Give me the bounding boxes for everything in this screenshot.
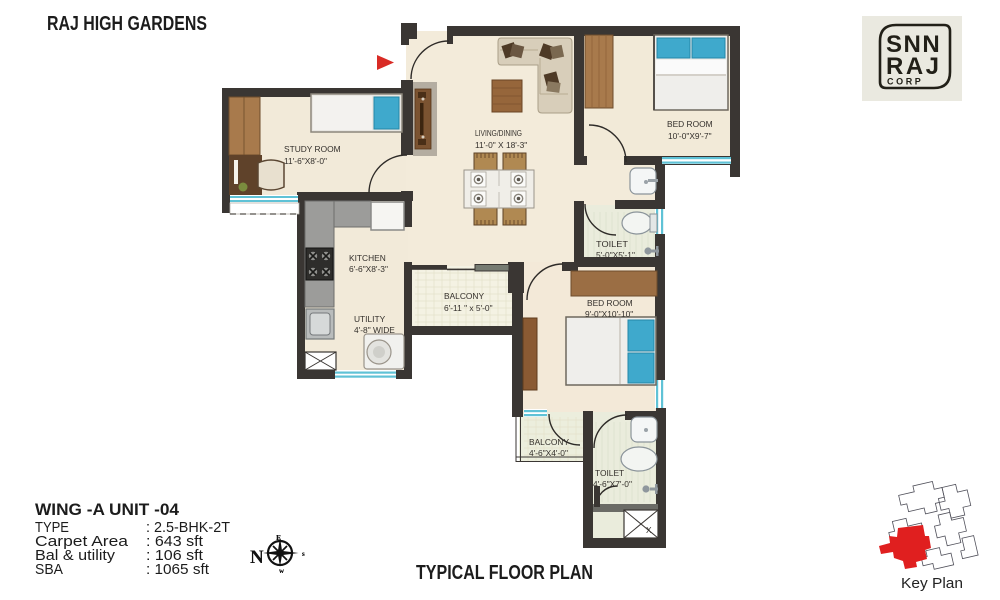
svg-text:Key Plan: Key Plan — [901, 576, 963, 592]
svg-text:11'-0" X 18'-3": 11'-0" X 18'-3" — [475, 140, 527, 150]
svg-text:BALCONY: BALCONY — [529, 437, 569, 447]
svg-text:KITCHEN: KITCHEN — [349, 253, 386, 263]
svg-text:STUDY ROOM: STUDY ROOM — [284, 144, 341, 154]
svg-text:s: s — [302, 550, 305, 558]
svg-text:BED ROOM: BED ROOM — [667, 119, 713, 129]
svg-text:10'-0"X9'-7": 10'-0"X9'-7" — [668, 131, 712, 141]
svg-text:6'-6"X8'-3": 6'-6"X8'-3" — [349, 264, 388, 274]
svg-text:BED ROOM: BED ROOM — [587, 298, 633, 308]
svg-text:4'-6"X7'-0": 4'-6"X7'-0" — [593, 479, 632, 489]
svg-text:11'-6"X8'-0": 11'-6"X8'-0" — [284, 156, 327, 166]
svg-text:N: N — [250, 547, 264, 568]
svg-text:: 1065 sft: : 1065 sft — [146, 561, 210, 578]
svg-text:5'-0"X5'-1": 5'-0"X5'-1" — [596, 250, 635, 260]
svg-text:RAJ HIGH GARDENS: RAJ HIGH GARDENS — [47, 13, 207, 35]
svg-text:4'-8" WIDE: 4'-8" WIDE — [354, 325, 395, 335]
svg-text:SBA: SBA — [35, 561, 63, 578]
svg-text:4'-6"X4'-0": 4'-6"X4'-0" — [529, 448, 568, 458]
svg-text:9'-0"X10'-10": 9'-0"X10'-10" — [585, 309, 633, 319]
svg-text:LIVING/DINING: LIVING/DINING — [475, 128, 522, 138]
svg-text:TOILET: TOILET — [596, 239, 628, 249]
svg-text:E: E — [276, 534, 281, 542]
svg-text:UTILITY: UTILITY — [354, 314, 386, 324]
svg-text:WING -A UNIT -04: WING -A UNIT -04 — [35, 500, 180, 519]
svg-text:TOILET: TOILET — [595, 468, 624, 478]
svg-text:w: w — [279, 567, 285, 575]
svg-text:CORP: CORP — [887, 77, 923, 87]
svg-text:TYPICAL FLOOR PLAN: TYPICAL FLOOR PLAN — [416, 562, 593, 584]
svg-text:BALCONY: BALCONY — [444, 291, 484, 301]
svg-text:6'-11 " x 5'-0": 6'-11 " x 5'-0" — [444, 303, 493, 313]
svg-text:X: X — [646, 525, 652, 535]
